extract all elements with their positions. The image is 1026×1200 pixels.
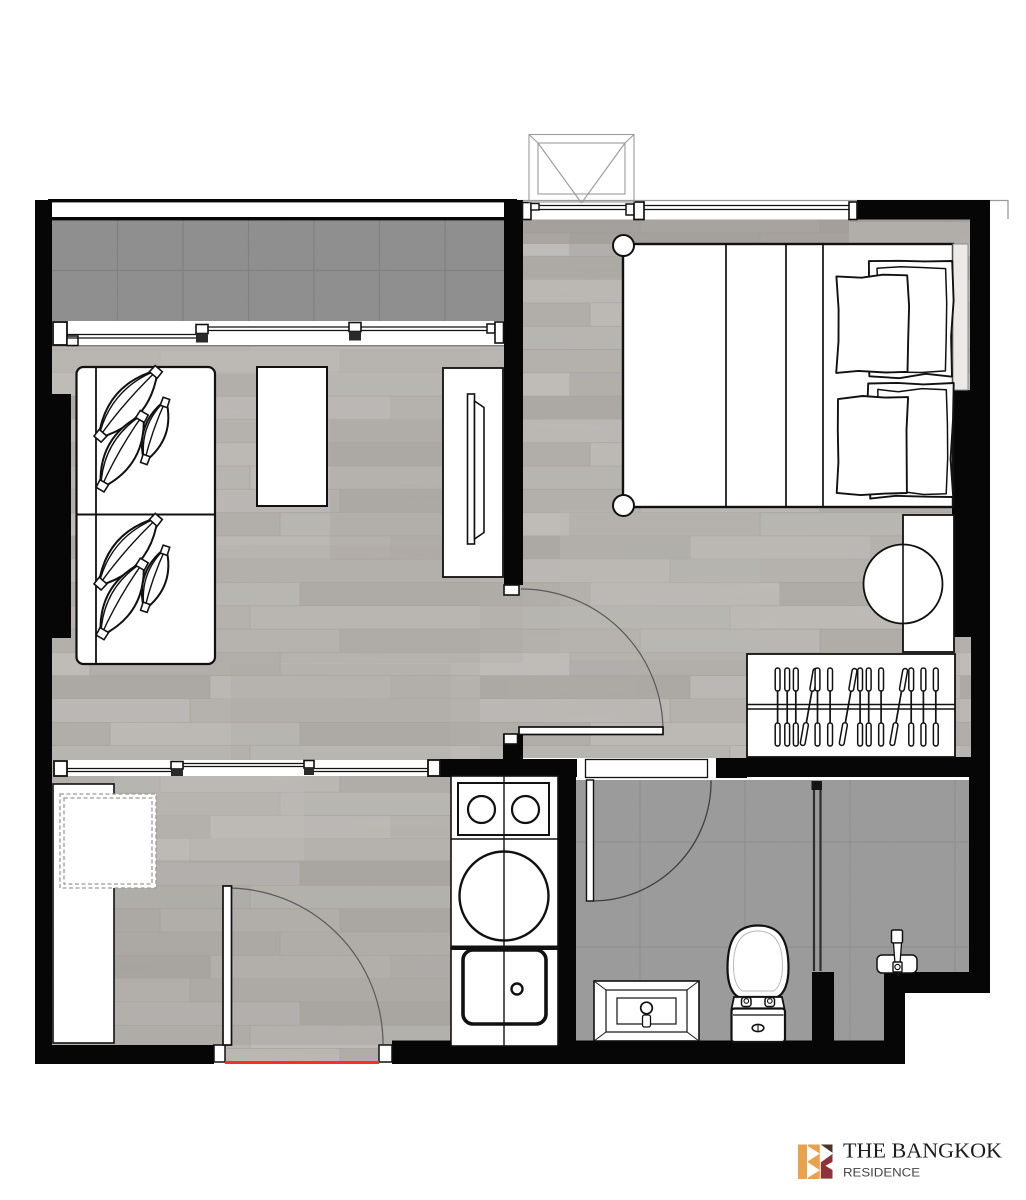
svg-text:RESIDENCE: RESIDENCE	[843, 1166, 920, 1180]
svg-text:THE BANGKOK: THE BANGKOK	[843, 1139, 1002, 1163]
